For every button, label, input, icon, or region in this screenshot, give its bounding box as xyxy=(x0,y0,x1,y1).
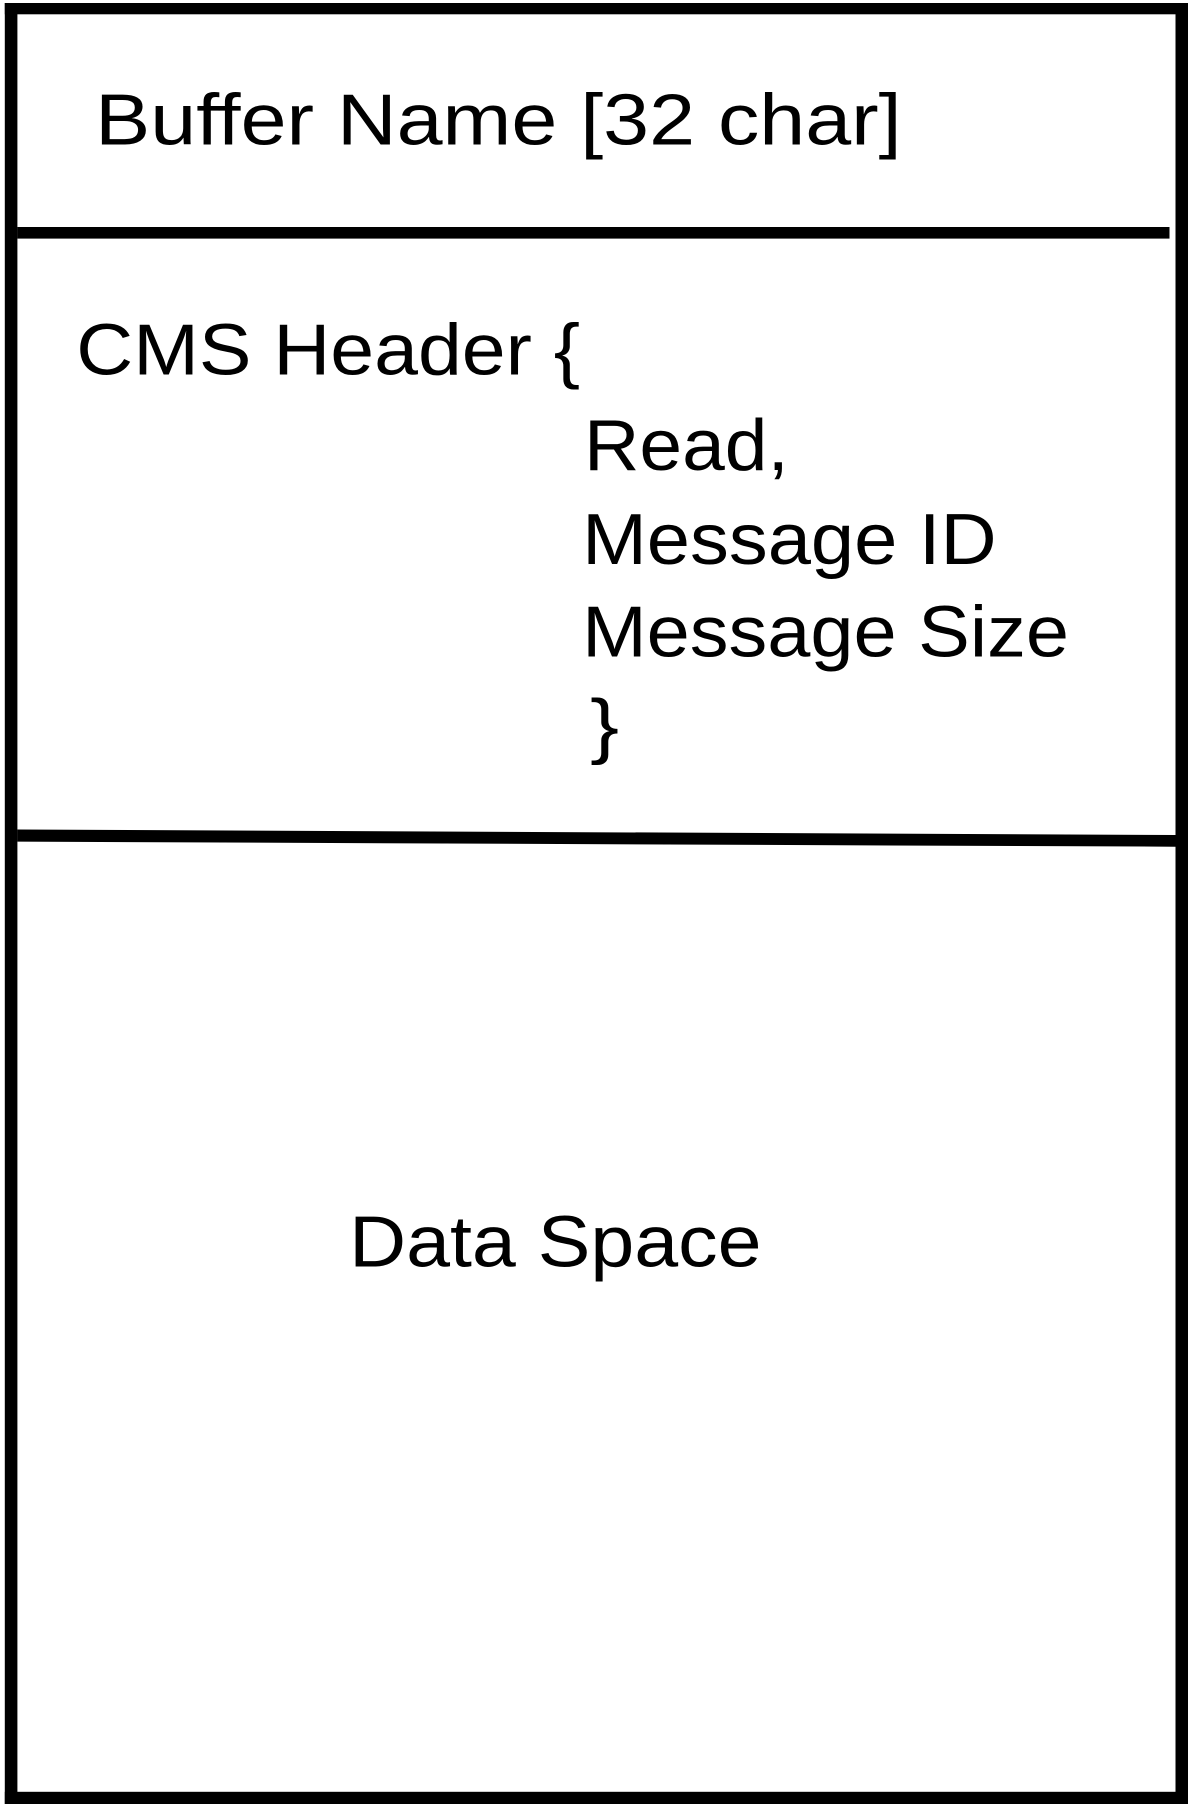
svg-text:Data Space: Data Space xyxy=(349,1203,761,1283)
svg-text:Message Size: Message Size xyxy=(582,593,1069,673)
svg-text:Message ID: Message ID xyxy=(582,500,997,580)
svg-text:Buffer Name [32 char]: Buffer Name [32 char] xyxy=(95,81,901,161)
svg-text:CMS Header {: CMS Header { xyxy=(76,310,580,390)
svg-text:}: } xyxy=(590,686,619,766)
svg-text:Read,: Read, xyxy=(584,406,789,486)
